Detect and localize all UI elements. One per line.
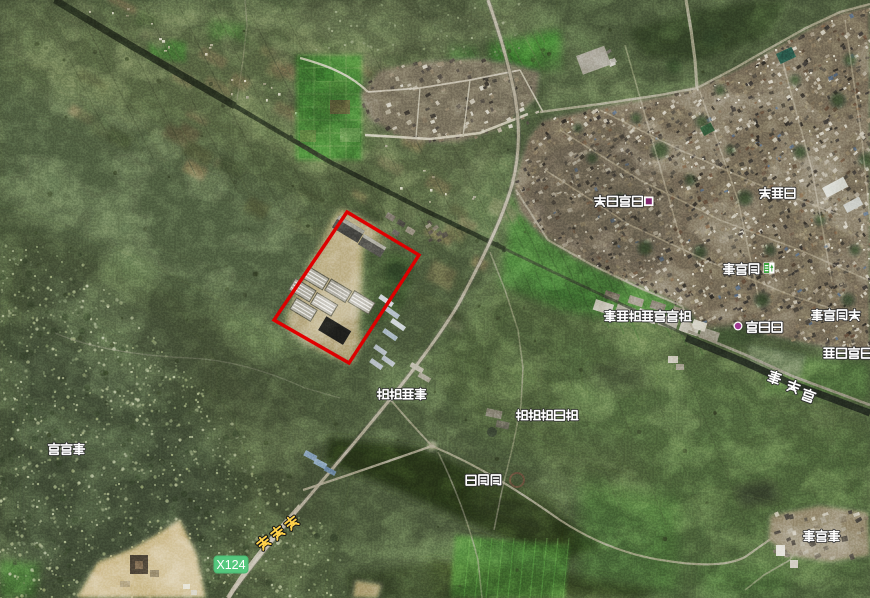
svg-text:X124: X124: [216, 558, 245, 572]
